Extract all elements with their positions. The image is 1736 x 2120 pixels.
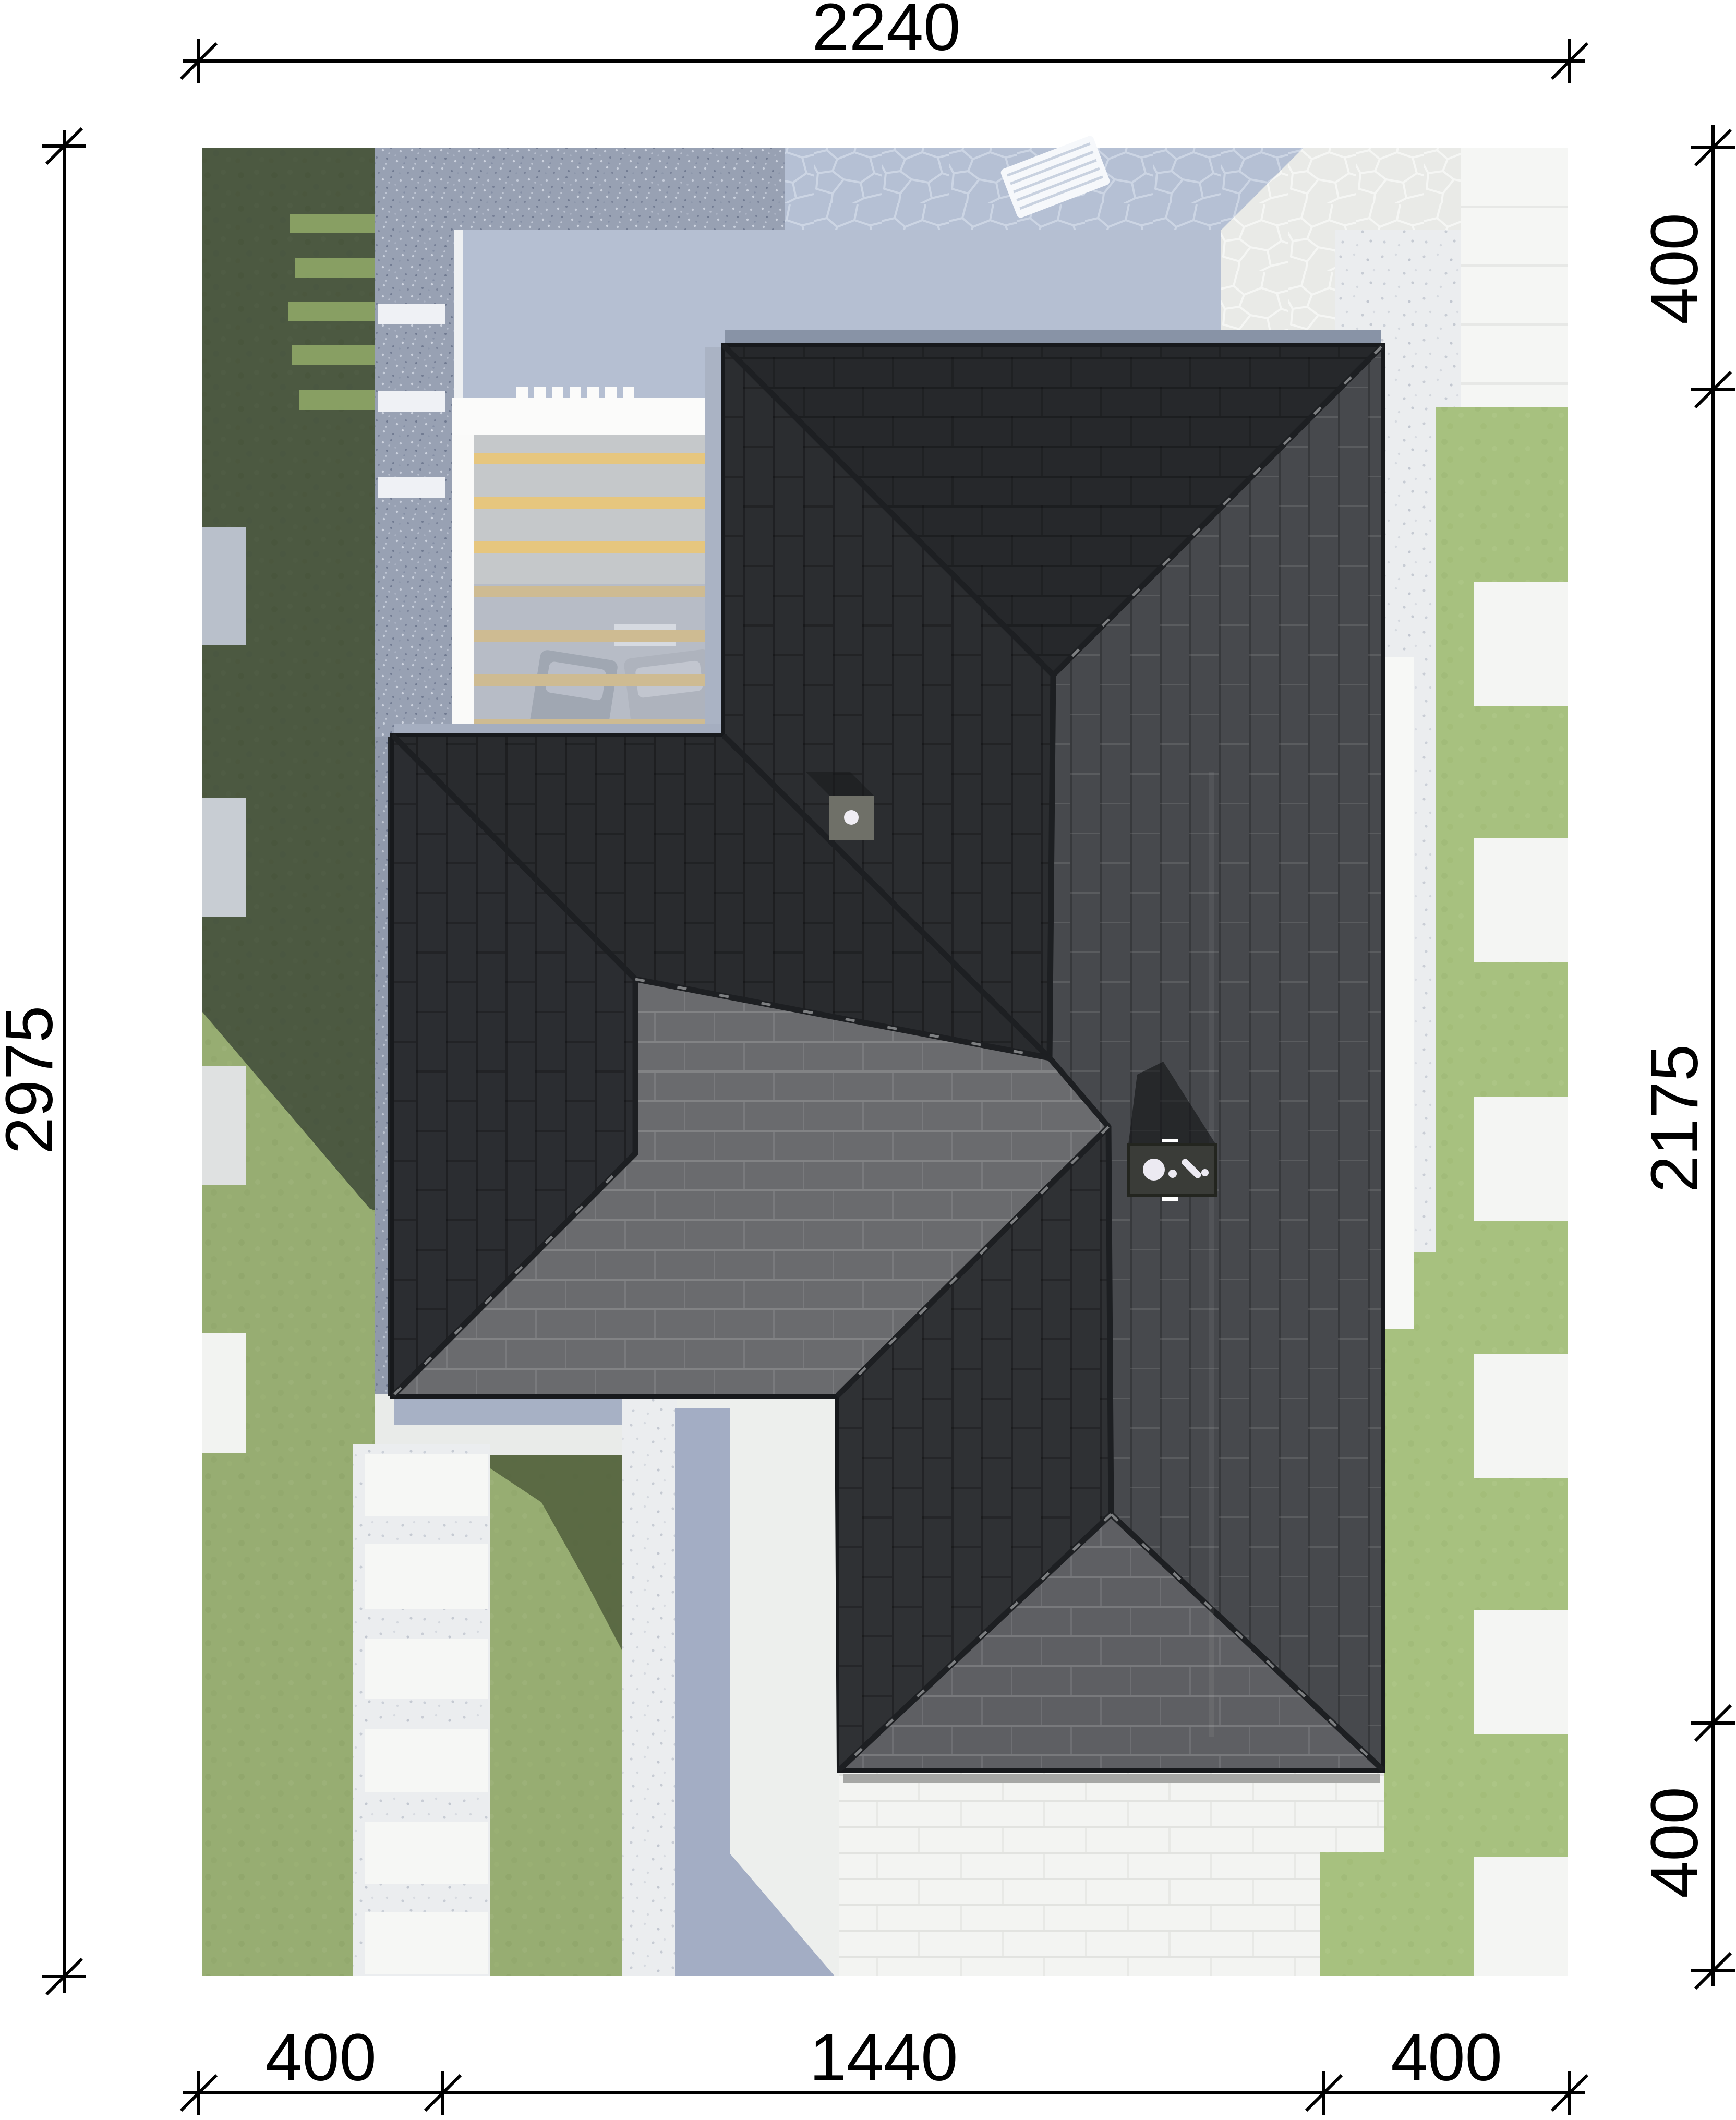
svg-text:400: 400 [1391, 2020, 1502, 2095]
svg-text:1440: 1440 [810, 2020, 958, 2095]
svg-text:400: 400 [1637, 213, 1712, 324]
svg-text:400: 400 [265, 2020, 377, 2095]
svg-text:2975: 2975 [0, 1006, 67, 1154]
svg-text:2175: 2175 [1637, 1044, 1712, 1193]
svg-text:400: 400 [1637, 1787, 1712, 1898]
svg-text:2240: 2240 [812, 0, 961, 65]
